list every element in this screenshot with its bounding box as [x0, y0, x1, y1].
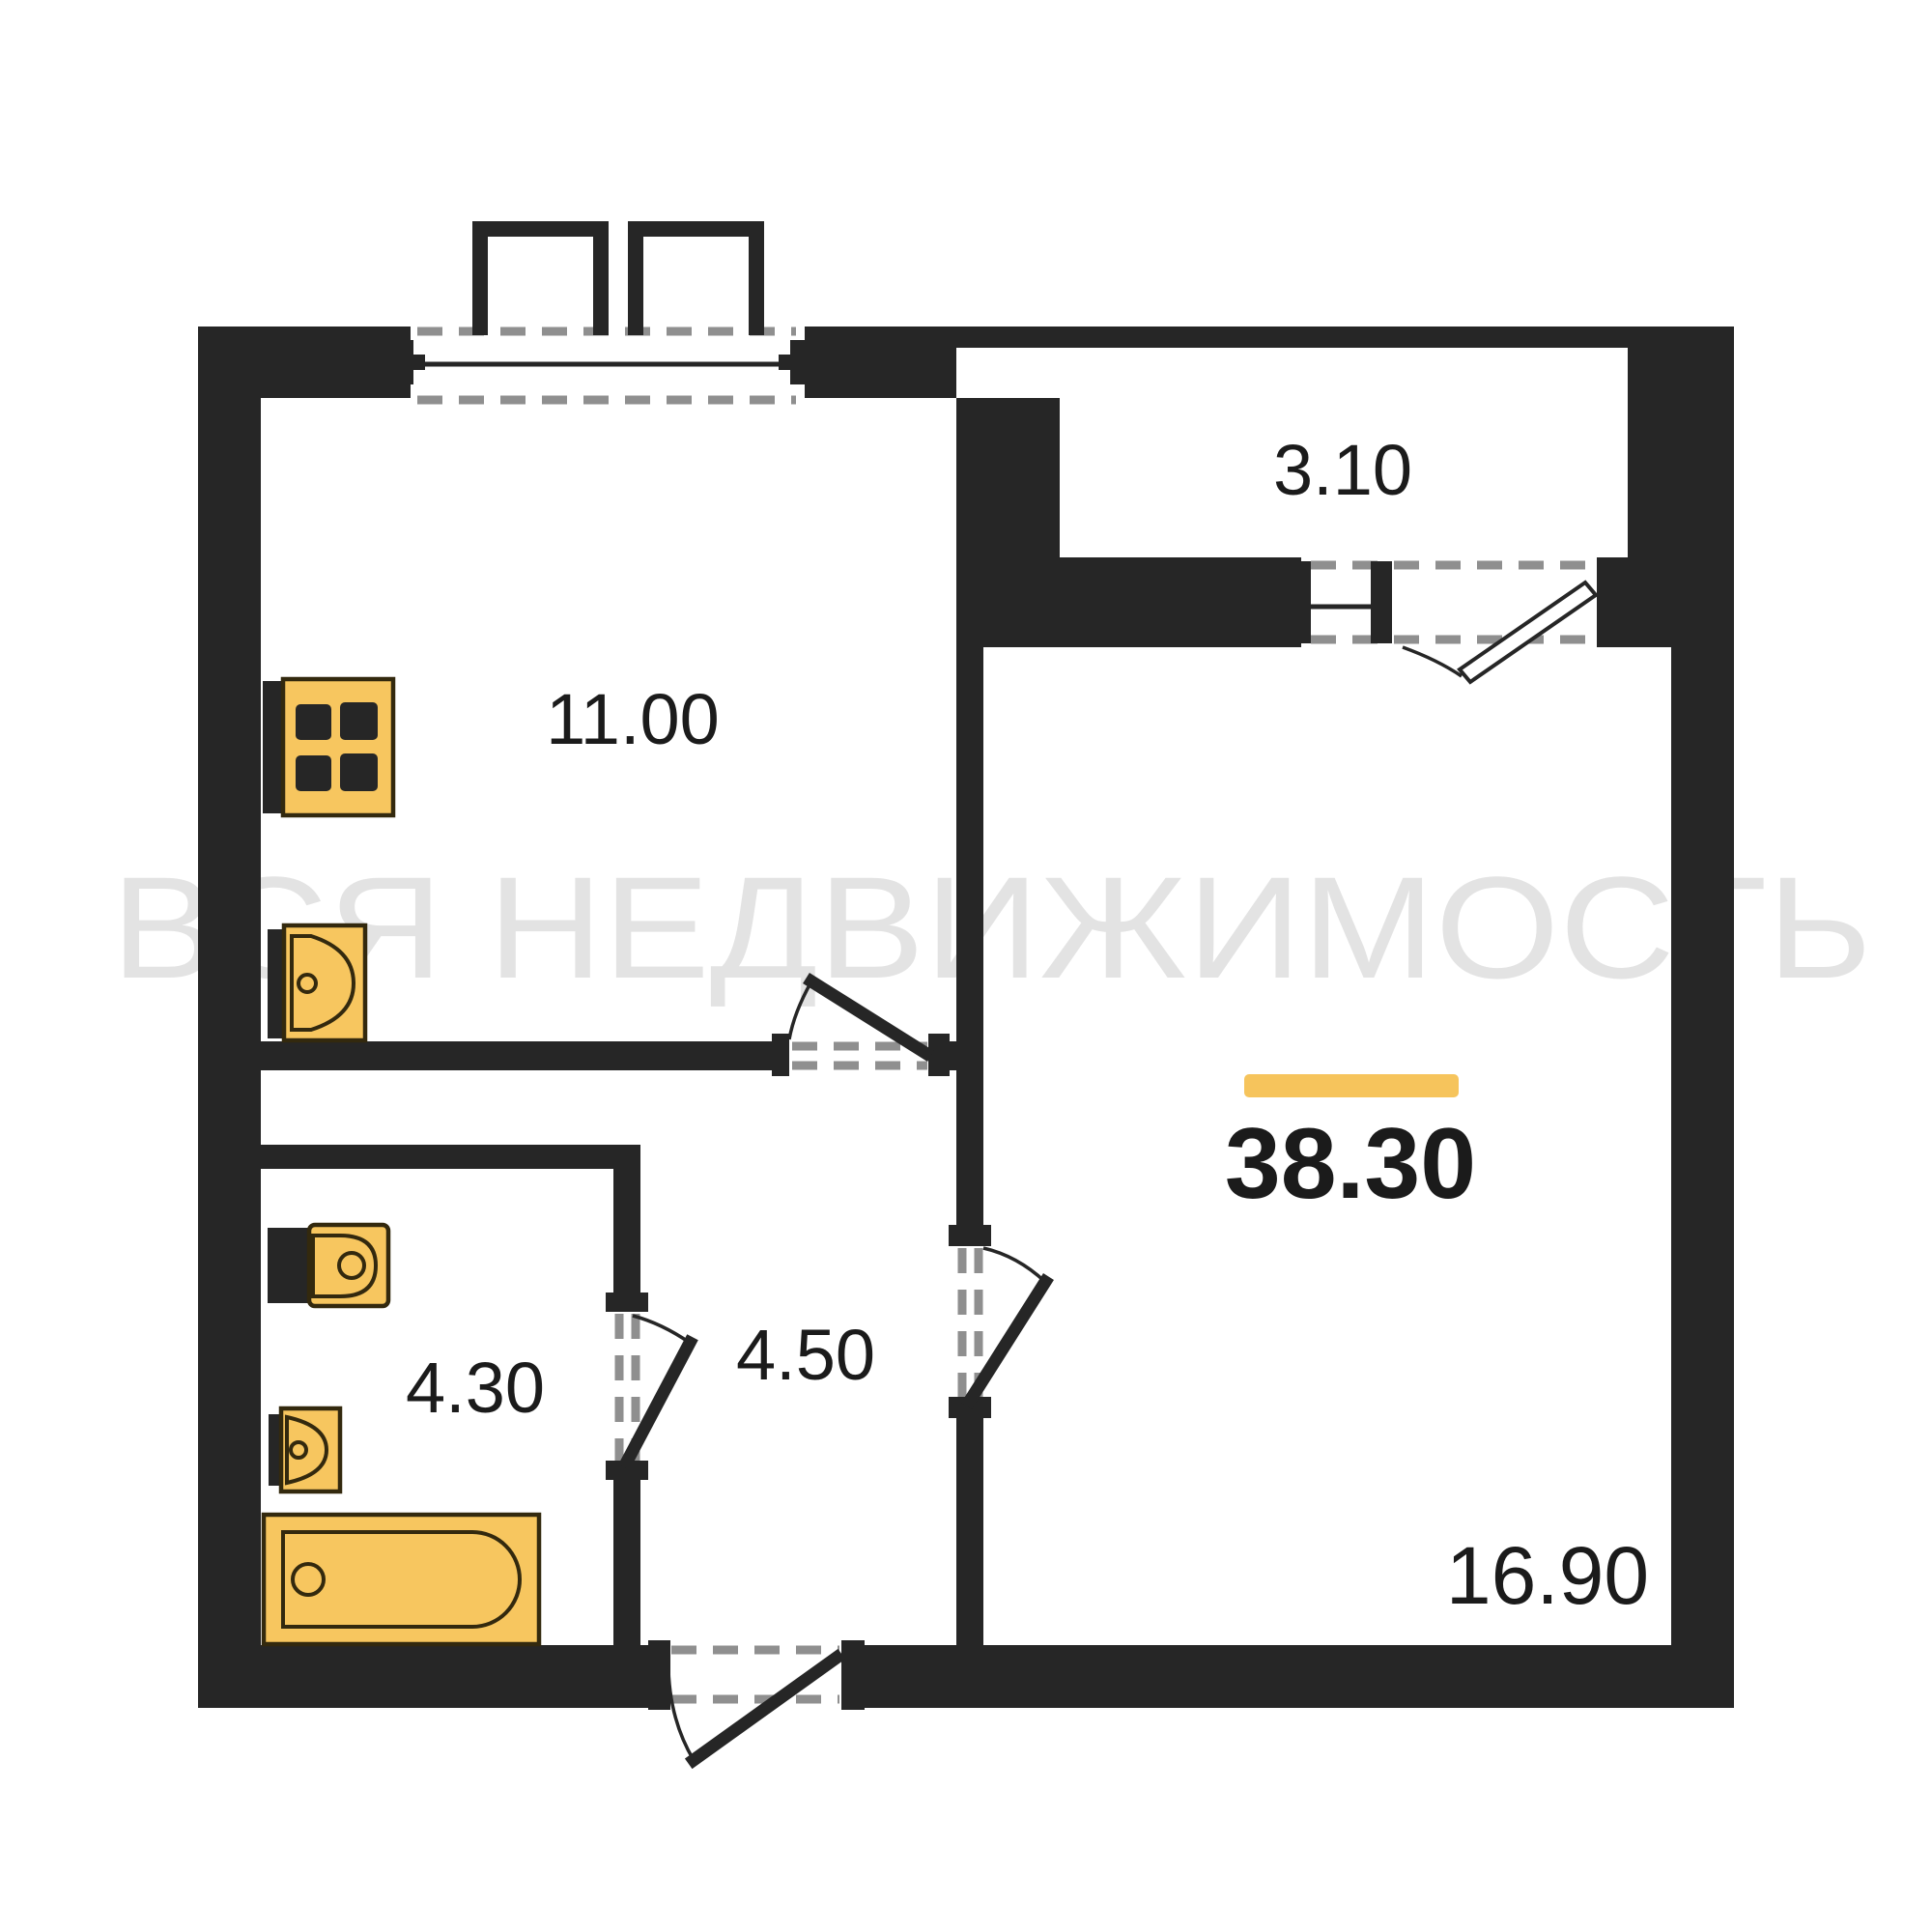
wall-left: [198, 327, 261, 1708]
wall-kitchen-bottom: [261, 1041, 787, 1070]
kitchen-sink-strip: [268, 929, 284, 1038]
stove-icon: [263, 679, 393, 815]
kitchen-window-post-left: [396, 340, 413, 384]
wall-top-kitchen-right: [805, 327, 956, 398]
balcony-door-arc: [1403, 647, 1462, 676]
wall-balcony-right: [1628, 348, 1734, 560]
kitchen-sink-icon: [268, 925, 365, 1040]
bathroom-door-arc: [633, 1316, 690, 1343]
kitchen-area-label: 11.00: [546, 679, 720, 759]
wall-top-kitchen-left: [198, 327, 411, 398]
wall-kitchen-living: [956, 647, 983, 1243]
kitchen-door-post-left: [772, 1034, 789, 1076]
balcony-window-post-mid: [1371, 561, 1392, 643]
watermark-text: ВСЯ НЕДВИЖИМОСТЬ: [111, 846, 1872, 1009]
wall-balcony-sill: [956, 557, 1301, 647]
walls: [198, 327, 1734, 1708]
stove-burner-3: [296, 755, 331, 791]
bathtub-icon: [264, 1515, 539, 1644]
bathroom-door: [606, 1293, 690, 1480]
balcony-area-label: 3.10: [1273, 430, 1412, 510]
bathtub-body: [264, 1515, 539, 1644]
stove-burner-4: [340, 753, 378, 791]
kitchen-window-post-right: [790, 340, 808, 384]
stove-burner-1: [296, 704, 331, 740]
living-area-label: 16.90: [1446, 1530, 1649, 1621]
wall-hall-living-lower: [956, 1407, 983, 1645]
toilet-tank: [268, 1228, 309, 1303]
stove-burner-2: [340, 702, 378, 740]
bathroom-area-label: 4.30: [406, 1348, 545, 1428]
balcony-railing-2: [636, 229, 756, 335]
toilet-icon: [268, 1225, 388, 1306]
balcony-window-post-left: [1295, 561, 1311, 643]
floorplan: ВСЯ НЕДВИЖИМОСТЬ: [0, 0, 1932, 1932]
kitchen-window: [396, 331, 808, 400]
wall-top-thin: [956, 327, 1734, 348]
wall-bathroom-top: [261, 1145, 640, 1169]
wall-right: [1671, 647, 1734, 1708]
living-room-door: [949, 1225, 1045, 1418]
balcony-window: [1295, 561, 1592, 643]
living-door-arc: [983, 1248, 1045, 1282]
entrance-door-post-right: [841, 1640, 865, 1710]
stove-body: [283, 679, 393, 815]
balcony-door-leaf: [1460, 582, 1596, 682]
wall-balcony-sill-right: [1597, 557, 1734, 647]
wall-bathroom-right-lower: [613, 1465, 640, 1645]
bathroom-sink-icon: [269, 1408, 340, 1492]
hallway-area-label: 4.50: [736, 1315, 875, 1395]
total-area-underline: [1244, 1074, 1459, 1097]
bathroom-door-post-top: [606, 1293, 648, 1312]
living-door-post-top: [949, 1225, 991, 1246]
total-area-label: 38.30: [1225, 1108, 1476, 1220]
stove-counter-strip: [263, 681, 283, 813]
balcony-door: [1403, 582, 1596, 682]
floorplan-drawing: ВСЯ НЕДВИЖИМОСТЬ: [0, 0, 1932, 1932]
balcony-railing-1: [480, 229, 601, 335]
entrance-door: [648, 1640, 865, 1760]
wall-bottom-left: [198, 1645, 668, 1708]
entrance-door-leaf: [694, 1658, 837, 1760]
wall-bathroom-right-upper: [613, 1169, 640, 1311]
wall-bottom-right: [843, 1645, 1734, 1708]
wall-kitchen-right-upper: [956, 398, 1060, 560]
entrance-door-arc: [668, 1654, 694, 1760]
